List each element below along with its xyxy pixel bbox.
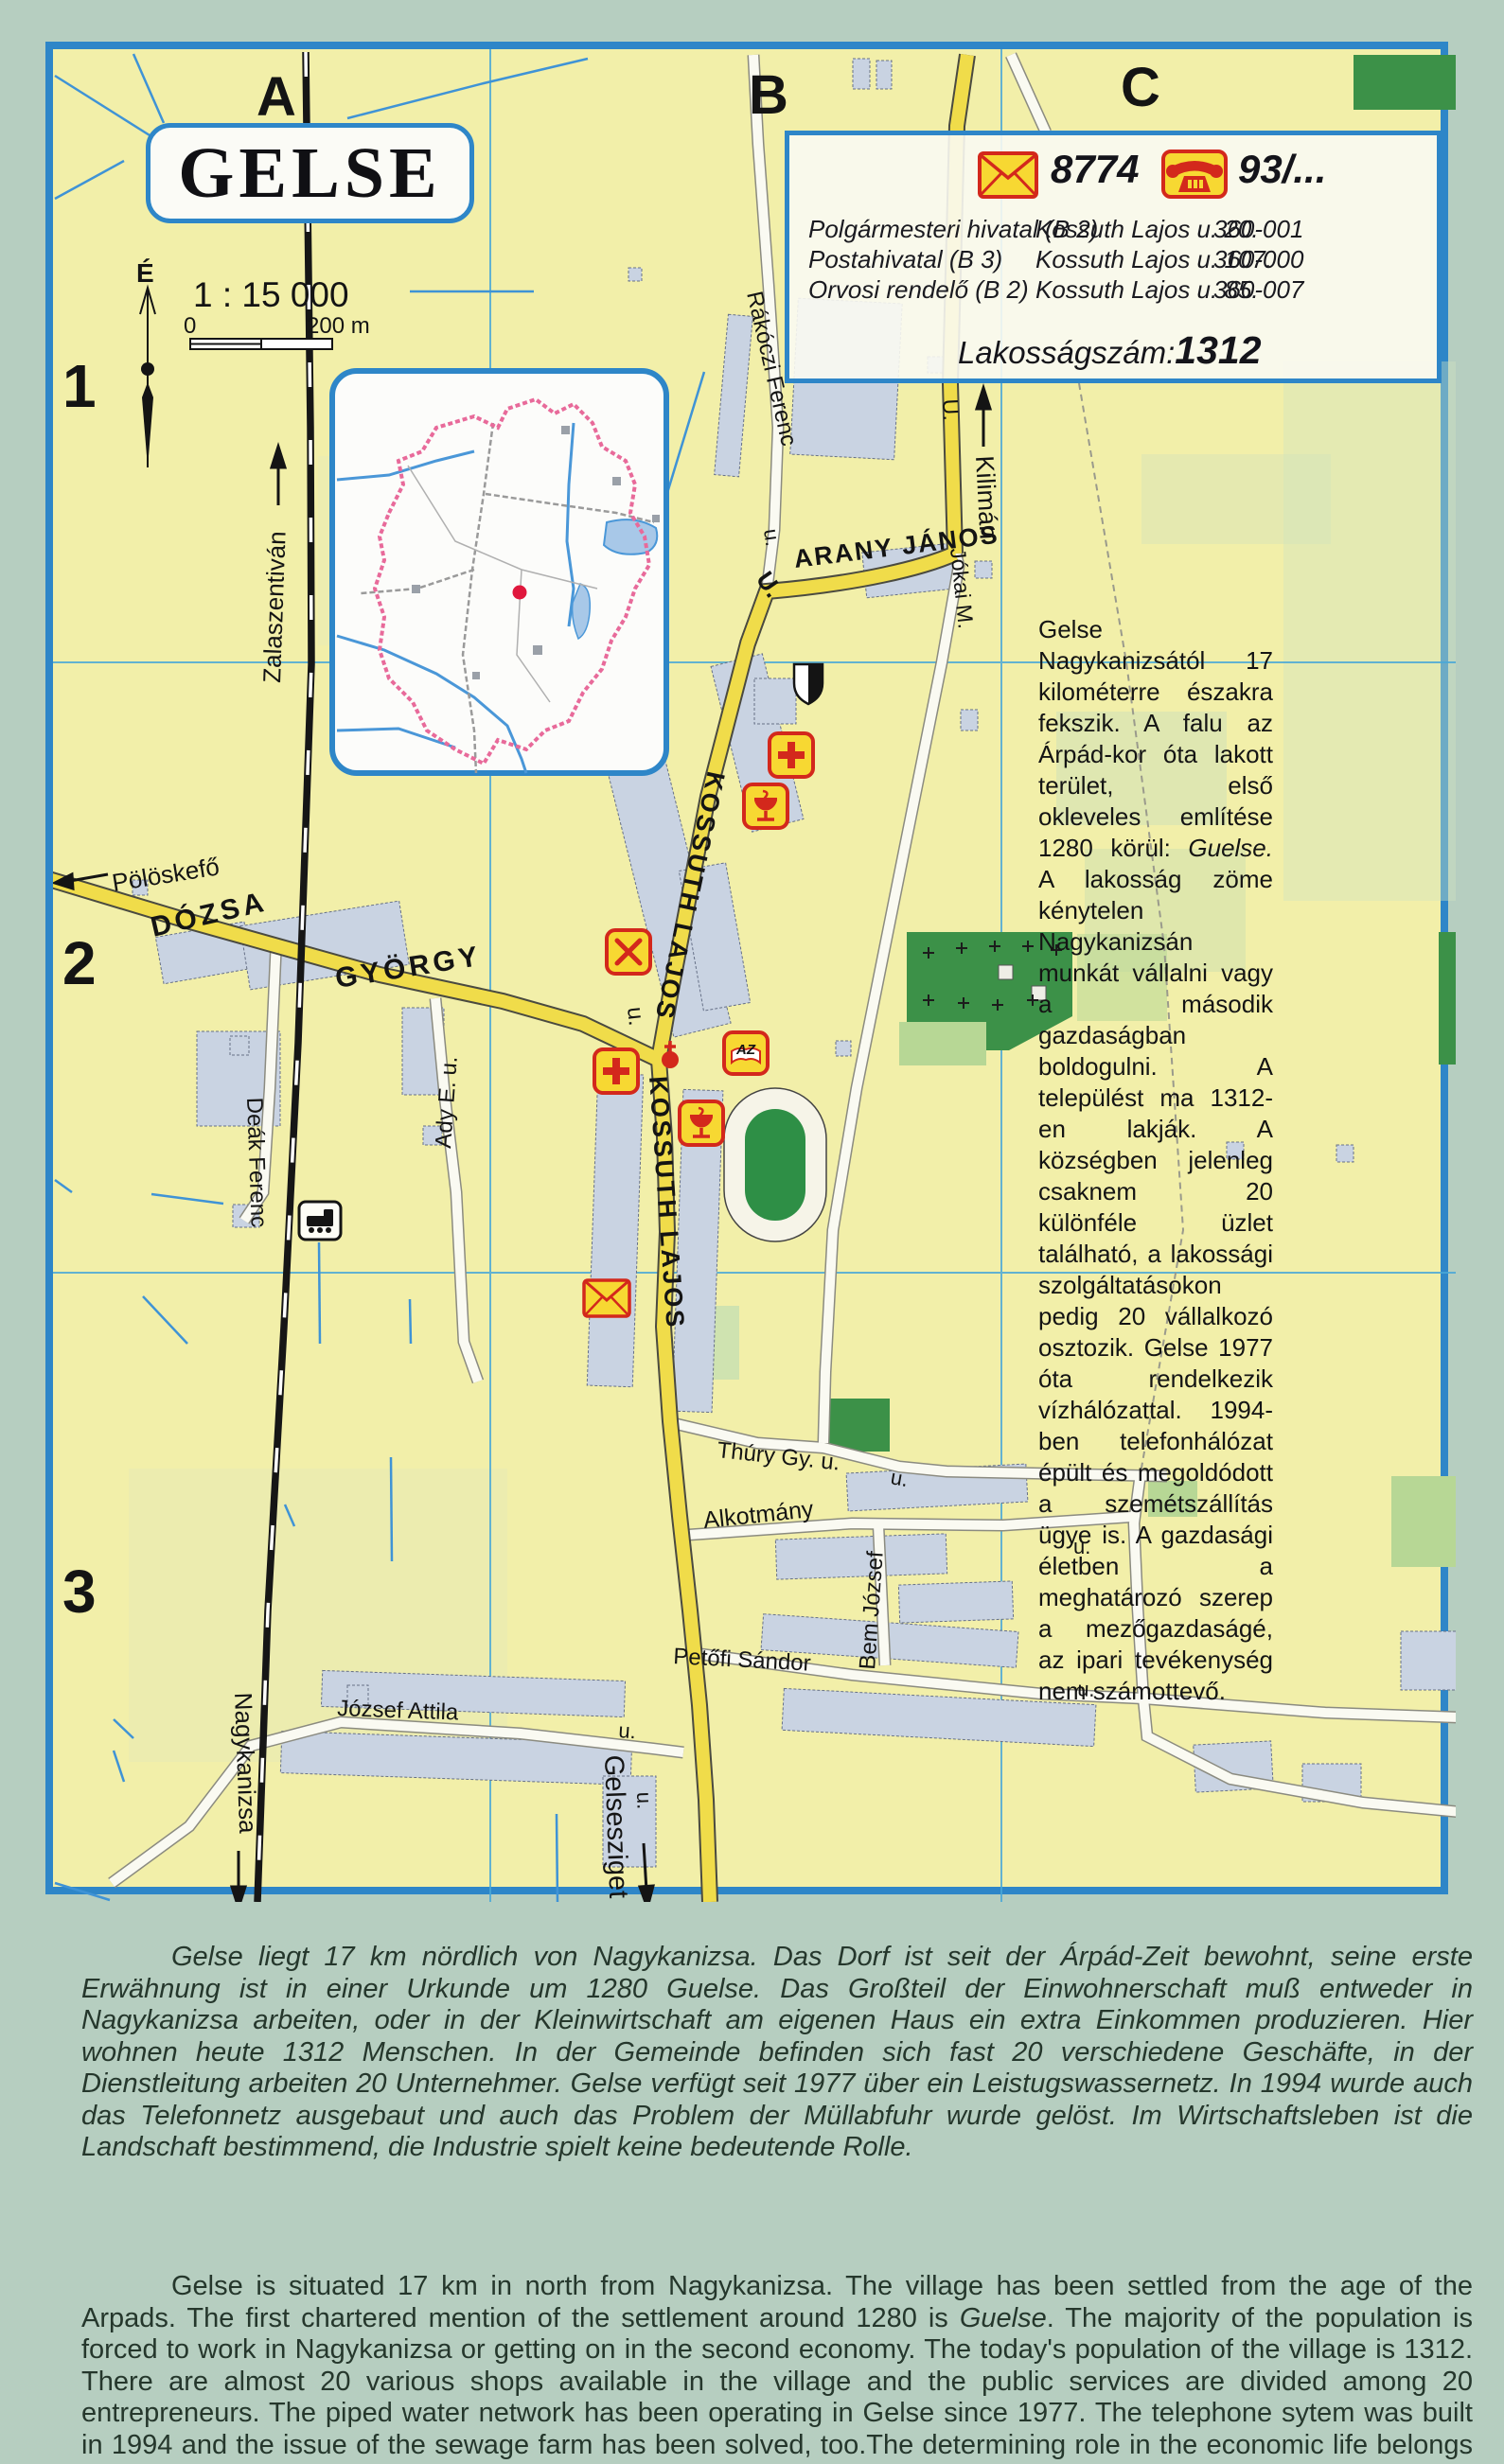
postal-envelope-icon [977, 150, 1039, 200]
inset-lake [604, 519, 657, 554]
street-deak: Deák Ferenc [241, 1097, 272, 1227]
street-gelsesziget: Gelsesziget [598, 1754, 633, 1899]
poi-row-phone: 360-001 [1213, 215, 1303, 244]
street-dozsa-u: u. [622, 1006, 649, 1028]
poi-row-phone: 360-007 [1213, 275, 1303, 305]
description-german: Gelse liegt 17 km nördlich von Nagykaniz… [81, 1942, 1473, 2164]
grid-row-3: 3 [62, 1558, 97, 1626]
medical-cross-icon [594, 1049, 638, 1093]
north-label: É [136, 258, 154, 288]
scale-zero: 0 [184, 313, 196, 339]
grid-col-b: B [749, 64, 788, 126]
sports-field [724, 1088, 826, 1241]
street-jozsef-attila-u: u. [618, 1718, 637, 1743]
school-book-icon: AZ [724, 1032, 768, 1074]
street-ady: Ady E. u. [431, 1055, 463, 1149]
railway-station-icon [299, 1202, 341, 1240]
hu-part2: A lakosság zöme kénytelen Nagykanizsán m… [1038, 865, 1273, 1705]
map-scale: 1 : 15 000 0 200 m [184, 275, 370, 349]
street-nagykanizsa: Nagykanizsa [229, 1692, 262, 1834]
inset-locator-map [332, 371, 666, 773]
en-emph: Guelse [960, 2303, 1047, 2333]
pharmacy-icon [744, 784, 787, 828]
scale-ratio: 1 : 15 000 [193, 275, 349, 314]
scale-max: 200 m [307, 313, 370, 339]
town-map-panel: É 1 : 15 000 0 200 m A B C 1 [45, 42, 1448, 1894]
grid-row-1: 1 [62, 352, 97, 420]
phone-prefix: 93/... [1238, 147, 1326, 192]
street-rakoczi-u: u. [759, 527, 785, 548]
park [823, 1399, 890, 1452]
street-gelsesziget-u: u. [632, 1791, 657, 1809]
grid-col-a: A [257, 66, 296, 128]
description-hungarian: Gelse Nagykanizsától 17 kilométerre észa… [1038, 614, 1273, 1707]
scanned-map-page: É 1 : 15 000 0 200 m A B C 1 [0, 0, 1504, 2464]
street-jozsef-attila: József Attila [337, 1696, 460, 1725]
gelse-location-dot [513, 586, 527, 600]
population-value: 1312 [1175, 328, 1261, 372]
poi-row-name: Orvosi rendelő (B 2) [808, 275, 1029, 305]
pharmacy-icon [680, 1101, 723, 1145]
street-poloskefo: Pölöskefő [110, 852, 221, 896]
post-office-envelope-icon [584, 1280, 629, 1316]
arrow-to-poloskefo [70, 874, 108, 881]
grid-col-c: C [1121, 57, 1160, 118]
population-label: Lakosságszám: [958, 335, 1175, 370]
town-hall-shield-icon [794, 664, 823, 704]
hu-emph: Guelse. [1188, 834, 1273, 862]
school-book-label: AZ [735, 1042, 756, 1058]
poi-row-name: Postahivatal (B 3) [808, 245, 1002, 274]
restaurant-icon [607, 930, 650, 974]
map-title-box: GELSE [146, 123, 474, 223]
poi-row-phone: 360-000 [1213, 245, 1303, 274]
page-title: GELSE [178, 132, 441, 215]
postal-code: 8774 [1051, 147, 1139, 192]
medical-cross-icon [770, 733, 813, 777]
north-compass: É [136, 258, 155, 467]
population-line: Lakosságszám:1312 [958, 328, 1262, 373]
hu-part1: Gelse Nagykanizsától 17 kilométerre észa… [1038, 615, 1273, 862]
street-kiliman: Kilimán [970, 455, 1003, 540]
street-zalaszentivan: Zalaszentiván [257, 531, 292, 683]
description-english: Gelse is situated 17 km in north from Na… [81, 2271, 1473, 2464]
street-kiliman-u: U. [938, 398, 964, 421]
town-info-box: 8774 93/... Polgármesteri hivatal (B 2) … [785, 131, 1442, 383]
grid-row-2: 2 [62, 929, 97, 997]
phone-icon [1160, 149, 1229, 200]
